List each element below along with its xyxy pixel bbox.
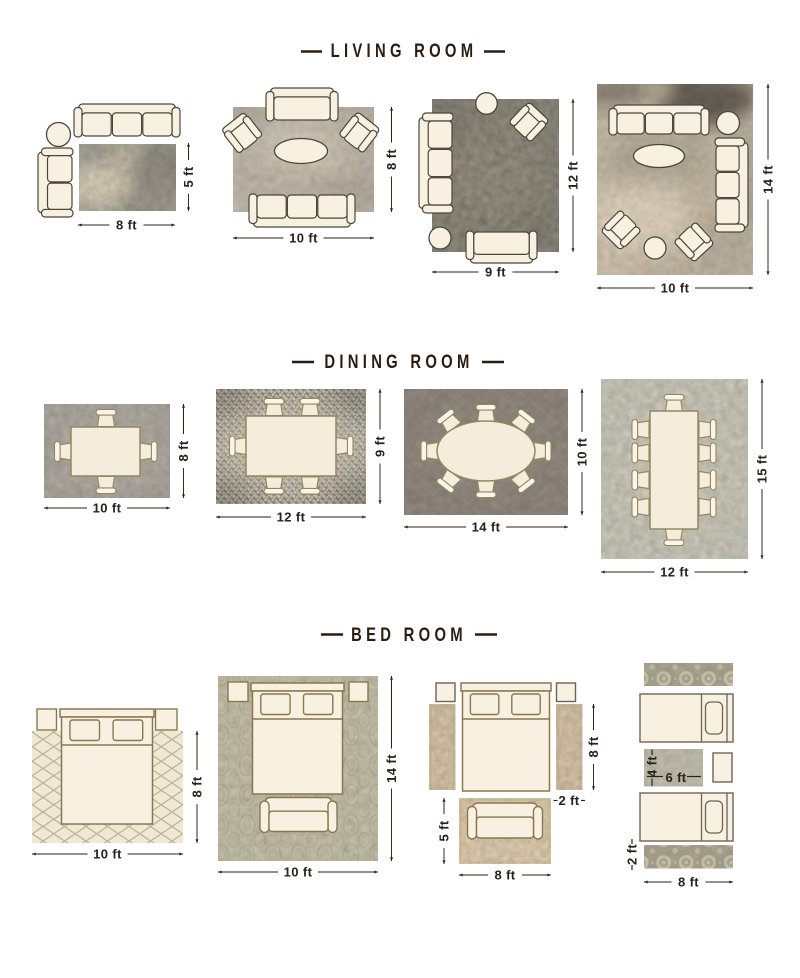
svg-text:12 ft: 12 ft: [660, 565, 689, 580]
svg-text:10 ft: 10 ft: [289, 231, 318, 246]
svg-text:9 ft: 9 ft: [373, 436, 388, 457]
svg-text:8 ft: 8 ft: [384, 149, 399, 170]
svg-text:8 ft: 8 ft: [586, 736, 601, 757]
svg-text:14 ft: 14 ft: [761, 165, 776, 194]
svg-text:12 ft: 12 ft: [277, 510, 306, 525]
svg-text:2 ft: 2 ft: [558, 793, 579, 808]
svg-text:DINING ROOM: DINING ROOM: [324, 351, 473, 372]
svg-text:10 ft: 10 ft: [284, 865, 313, 880]
svg-text:12 ft: 12 ft: [566, 161, 581, 190]
svg-text:8 ft: 8 ft: [176, 440, 191, 461]
svg-text:4 ft: 4 ft: [645, 756, 660, 777]
svg-text:15 ft: 15 ft: [755, 454, 770, 483]
svg-text:10 ft: 10 ft: [575, 437, 590, 466]
svg-text:10 ft: 10 ft: [93, 847, 122, 862]
svg-text:8 ft: 8 ft: [116, 218, 137, 233]
svg-text:9 ft: 9 ft: [485, 265, 506, 280]
svg-text:8 ft: 8 ft: [678, 875, 699, 890]
svg-text:14 ft: 14 ft: [472, 520, 501, 535]
svg-text:5 ft: 5 ft: [181, 166, 196, 187]
svg-text:8 ft: 8 ft: [190, 776, 205, 797]
svg-text:6 ft: 6 ft: [665, 770, 686, 785]
svg-text:14 ft: 14 ft: [384, 754, 399, 783]
svg-text:2 ft: 2 ft: [625, 844, 640, 865]
svg-text:10 ft: 10 ft: [661, 281, 690, 296]
svg-text:8 ft: 8 ft: [494, 868, 515, 883]
svg-text:BED ROOM: BED ROOM: [351, 624, 467, 645]
svg-text:LIVING ROOM: LIVING ROOM: [331, 40, 478, 61]
svg-text:10 ft: 10 ft: [93, 501, 122, 516]
svg-text:5 ft: 5 ft: [437, 820, 452, 841]
